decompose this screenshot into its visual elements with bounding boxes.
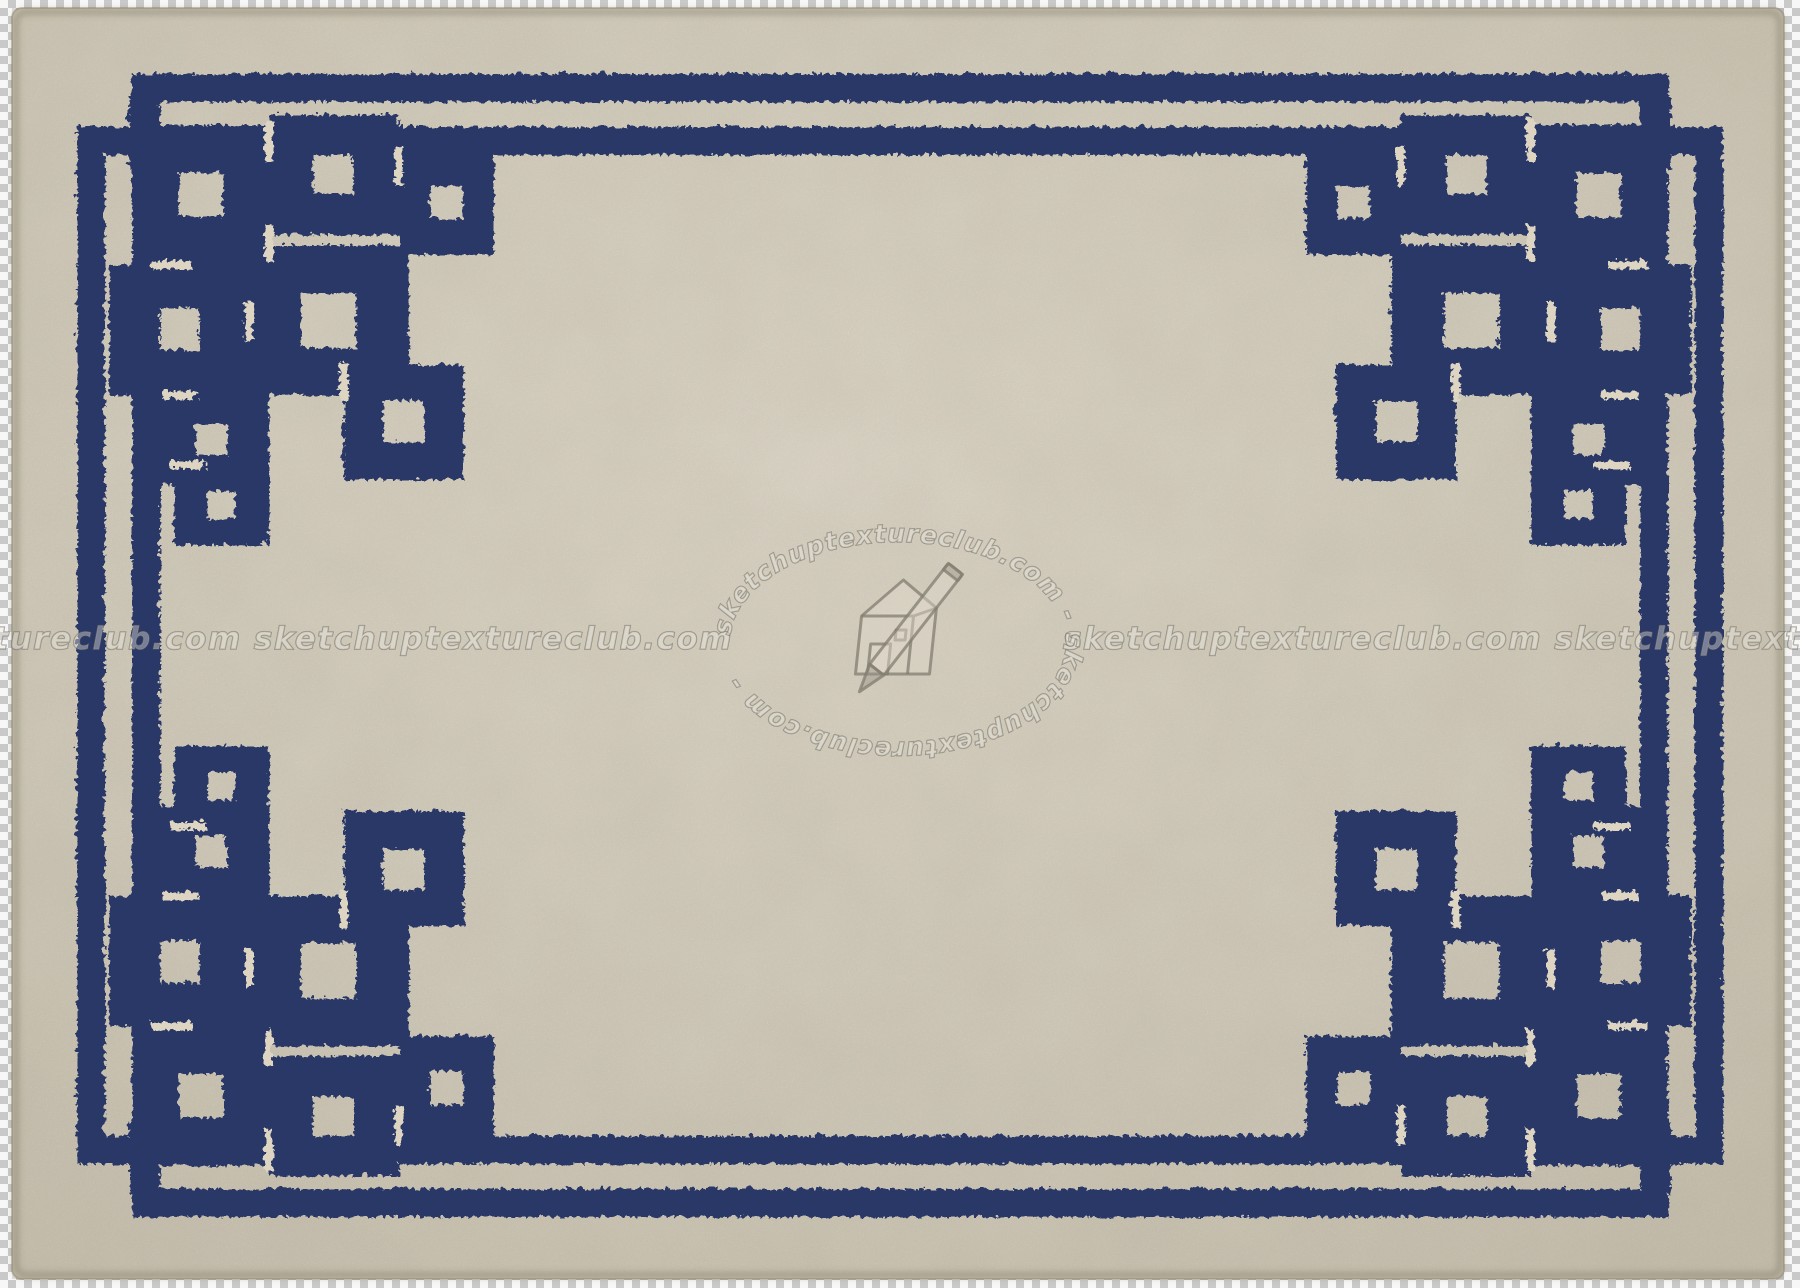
watermark-band-right: sketchuptextureclub.com sketchuptexturec… [1063,621,1800,657]
watermark-band-left: sketchuptextureclub.com sketchuptexturec… [0,621,733,657]
rug-texture-image: sketchuptextureclub.com sketchuptexturec… [0,0,1800,1288]
border-line-bottom-outer [130,1187,1666,1215]
border-line-top-outer [130,72,1666,100]
texture-preview-page: { "image": { "subject": "Cream wool rug … [0,0,1800,1288]
transparency-checkerboard: sketchuptextureclub.com sketchuptexturec… [0,0,1800,1288]
